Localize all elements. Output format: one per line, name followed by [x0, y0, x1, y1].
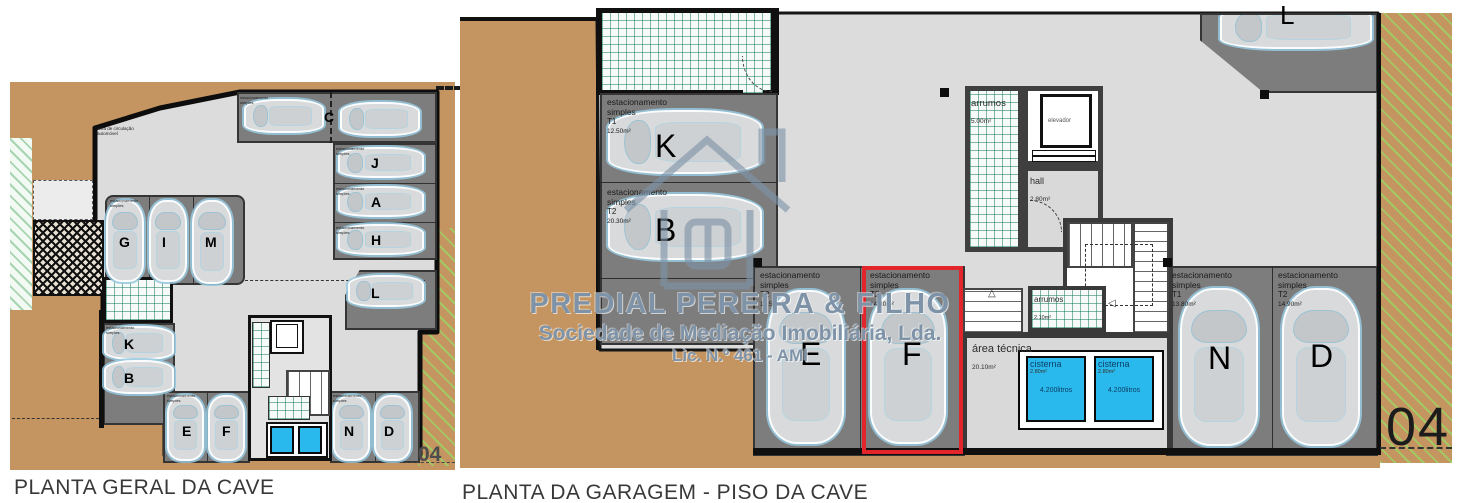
spot-letter-N-right: N	[1208, 340, 1231, 377]
ramp-left-wall	[596, 8, 602, 95]
right-plan-title: PLANTA DA GARAGEM - PISO DA CAVE	[462, 481, 868, 503]
stall-AH-divider	[333, 222, 437, 223]
cistern-1: cisterna 2.80m² 4.200litros	[1026, 356, 1086, 422]
stall-microlabel: estacionamentosimples	[106, 326, 134, 335]
left-cistern-2	[298, 426, 322, 454]
left-core-arrumos2	[268, 396, 310, 420]
left-wall-KB	[99, 310, 104, 428]
right-sheet-number: 04	[1386, 396, 1450, 458]
stall-label-K: estacionamento simples T1 12.50m²	[607, 98, 667, 136]
stall-microlabel: estacionamentosimples	[110, 199, 138, 208]
car-icon	[1222, 13, 1370, 47]
spot-letter-L: L	[371, 285, 380, 301]
spot-letter-J: J	[371, 155, 379, 171]
hall-label: hall 2.80m²	[1030, 172, 1050, 206]
left-sheet-number: 04	[418, 443, 441, 467]
elevator-label: elevador	[1048, 118, 1071, 124]
car-icon	[246, 101, 322, 131]
spot-letter-C: C	[324, 109, 334, 125]
spot-letter-K: K	[124, 336, 134, 352]
car-icon	[106, 362, 172, 392]
stall-label-E: estacionamento simples T2 15.50m²	[760, 271, 820, 309]
spot-letter-I: I	[162, 234, 166, 250]
highlight-stall-F	[862, 266, 963, 454]
left-cistern-1	[270, 426, 294, 454]
stall-JA-divider	[333, 183, 437, 184]
spot-letter-E: E	[182, 423, 191, 439]
right-terrain-left	[460, 20, 600, 468]
spot-letter-N: N	[344, 423, 354, 439]
right-ramp-grid	[602, 13, 772, 93]
right-bottom-wall	[753, 448, 1382, 455]
cistern-2: cisterna 2.80m² 4.200litros	[1094, 356, 1154, 422]
stall-microlabel: estacionamentosimples	[336, 147, 364, 156]
stall-label-B: estacionamento simples T2 20.30m²	[607, 188, 667, 226]
drawing-sheet: área de circulação automóvel estacioname…	[0, 0, 1463, 503]
right-terrain-topwall	[460, 17, 600, 21]
stall-B-bottom-divider	[600, 278, 778, 279]
left-plan-crosshatch	[33, 220, 104, 296]
stall-label-N: estacionamento simples T1 13.80m²	[1172, 271, 1232, 309]
column-marker	[1260, 90, 1269, 99]
spot-letter-D-right: D	[1310, 338, 1333, 375]
left-plan-title: PLANTA GERAL DA CAVE	[14, 476, 275, 500]
car-icon	[151, 202, 185, 280]
arrumos2-label: arrumos 2.10m²	[1034, 290, 1063, 324]
left-plan-note: área de circulação automóvel	[97, 127, 134, 136]
stall-ND-divider-right	[1272, 266, 1273, 456]
column-marker	[753, 258, 762, 267]
stall-KB-divider	[600, 182, 778, 183]
spot-letter-G: G	[119, 234, 130, 250]
right-hatch-wall	[1377, 13, 1381, 455]
car-icon	[350, 277, 422, 305]
column-marker	[940, 88, 949, 97]
stall-microlabel: estacionamentosimples	[240, 96, 268, 105]
left-plan-ramp-grid	[103, 277, 173, 323]
spot-letter-L-right: L	[1280, 0, 1294, 31]
area-tecnica-label: área técnica 20.10m²	[972, 340, 1032, 374]
left-core-arrumos	[252, 322, 270, 388]
spot-letter-F: F	[222, 423, 231, 439]
left-plan-door-area	[33, 180, 93, 220]
stall-EF-divider-right	[860, 266, 861, 456]
stall-microlabel: estacionamentosimples	[167, 394, 195, 403]
spot-letter-B: B	[124, 370, 134, 386]
stall-microlabel: estacionamentosimples	[336, 187, 364, 196]
car-icon	[342, 104, 418, 134]
spot-letter-D: D	[384, 423, 394, 439]
spot-letter-H: H	[371, 232, 381, 248]
left-core-elevator-cab	[276, 324, 298, 348]
spot-letter-A: A	[371, 194, 381, 210]
stairs-arrow-up-icon: △	[988, 288, 996, 299]
stall-label-D: estacionamento simples T2 14.90m²	[1278, 271, 1338, 309]
arrumos-label: arrumos 5.00m²	[971, 94, 1006, 128]
ramp-right-wall	[771, 8, 779, 95]
spot-letter-M: M	[205, 234, 217, 250]
elevator-door-sill-2	[1032, 156, 1096, 162]
ramp-top-wall	[596, 8, 779, 13]
stall-microlabel: estacionamentosimples	[336, 226, 364, 235]
stall-GI-divider	[149, 195, 150, 285]
stairs-arrow-left-icon: ◁	[1108, 298, 1116, 309]
stall-EF-divider	[207, 391, 208, 463]
spot-letter-E-right: E	[800, 336, 821, 373]
stall-microlabel: estacionamentosimples	[333, 394, 361, 403]
column-marker	[1163, 258, 1172, 267]
